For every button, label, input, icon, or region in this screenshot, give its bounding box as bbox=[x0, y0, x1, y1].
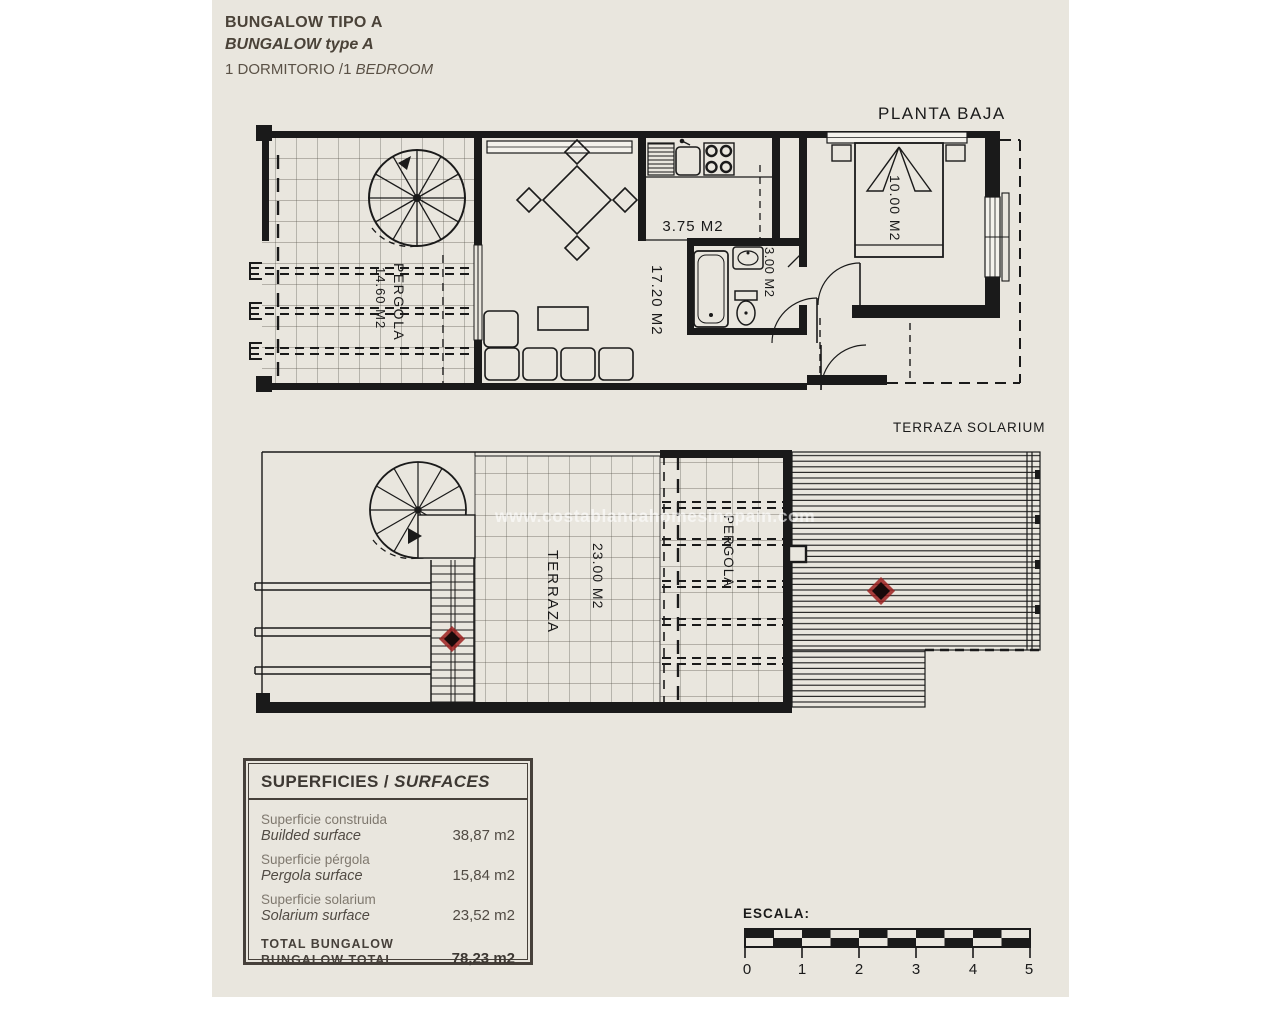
terraza-label: TERRAZA bbox=[544, 550, 561, 634]
coffee-table bbox=[538, 307, 588, 330]
bath-sink bbox=[733, 247, 763, 269]
scale-tick-3: 3 bbox=[912, 961, 920, 978]
row-label-es: Superficie pérgola bbox=[261, 852, 452, 868]
nightstand-left bbox=[832, 145, 851, 161]
table-row: Superficie construida Builded surface 38… bbox=[261, 812, 515, 845]
scale-tick-5: 5 bbox=[1025, 961, 1033, 978]
nightstand-right bbox=[946, 145, 965, 161]
subtitle: 1 DORMITORIO /1 BEDROOM bbox=[225, 58, 433, 82]
scale-tick-1: 1 bbox=[798, 961, 806, 978]
scale-block: ESCALA: 0 1 2 3 4 bbox=[743, 906, 1043, 984]
bedroom-area-label: 10.00 M2 bbox=[887, 175, 903, 241]
roof-corner-block bbox=[256, 693, 270, 713]
row-label-en: Pergola surface bbox=[261, 868, 452, 885]
pergola-label: PERGOLA bbox=[391, 263, 407, 341]
roof-plan-title: TERRAZA SOLARIUM bbox=[893, 420, 1046, 435]
window-bedroom-top bbox=[827, 132, 967, 143]
scale-label: ESCALA: bbox=[743, 906, 1043, 921]
toilet bbox=[735, 291, 757, 325]
railings bbox=[255, 583, 431, 674]
ground-plan-title: PLANTA BAJA bbox=[878, 104, 1006, 123]
living-area-label: 17.20 M2 bbox=[648, 265, 665, 336]
title-es: BUNGALOW TIPO A bbox=[225, 12, 433, 34]
title-block: BUNGALOW TIPO A BUNGALOW type A 1 DORMIT… bbox=[225, 12, 433, 82]
window-bedroom-right bbox=[985, 193, 1009, 281]
solarium bbox=[789, 452, 1040, 707]
row-label-es: Superficie solarium bbox=[261, 892, 452, 908]
plan-sheet: BUNGALOW TIPO A BUNGALOW type A 1 DORMIT… bbox=[212, 0, 1069, 997]
bedroom-door-arc bbox=[818, 263, 860, 305]
scale-bar: 0 1 2 3 4 5 bbox=[743, 927, 1043, 979]
sofa bbox=[484, 311, 633, 380]
row-label-en: Solarium surface bbox=[261, 908, 452, 925]
drainboard bbox=[648, 143, 674, 175]
ground-floor-plan: PLANTA BAJA bbox=[212, 95, 1069, 407]
row-label-en: Builded surface bbox=[261, 828, 452, 845]
row-value: 23,52 m2 bbox=[452, 907, 515, 925]
dining-table bbox=[517, 140, 637, 260]
bathroom bbox=[694, 247, 804, 327]
kitchen: 3.75 M2 bbox=[638, 139, 772, 240]
scale-tick-4: 4 bbox=[969, 961, 977, 978]
title-en: BUNGALOW type A bbox=[225, 34, 433, 56]
terraza bbox=[475, 456, 660, 706]
total-label-es: TOTAL BUNGALOW bbox=[261, 936, 452, 952]
table-total-row: TOTAL BUNGALOW BUNGALOW TOTAL 78,23 m2 bbox=[261, 936, 515, 968]
row-label-es: Superficie construida bbox=[261, 812, 452, 828]
surfaces-heading: SUPERFICIES / SURFACES bbox=[249, 764, 527, 800]
row-value: 15,84 m2 bbox=[452, 867, 515, 885]
surfaces-table: SUPERFICIES / SURFACES Superficie constr… bbox=[243, 758, 533, 965]
hob bbox=[704, 143, 734, 175]
scale-tick-0: 0 bbox=[743, 961, 751, 978]
beam-end-caps bbox=[250, 263, 262, 359]
spiral-staircase bbox=[369, 150, 465, 247]
row-value: 38,87 m2 bbox=[452, 827, 515, 845]
kitchen-sink bbox=[676, 139, 700, 175]
terraza-area-label: 23.00 M2 bbox=[590, 543, 606, 609]
pergola-area-label: 14.60 M2 bbox=[373, 267, 388, 329]
table-row: Superficie solarium Solarium surface 23,… bbox=[261, 892, 515, 925]
roof-bottom-wall bbox=[256, 702, 792, 713]
wall-box bbox=[789, 546, 806, 562]
spiral-staircase-roof bbox=[370, 462, 475, 559]
watermark: www.costablancahomesinspain.com bbox=[494, 506, 815, 526]
pergola-zone bbox=[250, 131, 480, 390]
stair-landing bbox=[418, 515, 475, 558]
scale-tick-2: 2 bbox=[855, 961, 863, 978]
bathroom-area-label: 3.00 M2 bbox=[762, 247, 777, 297]
table-row: Superficie pérgola Pergola surface 15,84… bbox=[261, 852, 515, 885]
total-value: 78,23 m2 bbox=[452, 950, 515, 968]
window-living bbox=[487, 141, 632, 153]
total-label-en: BUNGALOW TOTAL bbox=[261, 952, 452, 968]
kitchen-area-label: 3.75 M2 bbox=[662, 218, 723, 235]
roof-plan: TERRAZA SOLARIUM bbox=[212, 410, 1069, 722]
sliding-door bbox=[474, 245, 482, 340]
